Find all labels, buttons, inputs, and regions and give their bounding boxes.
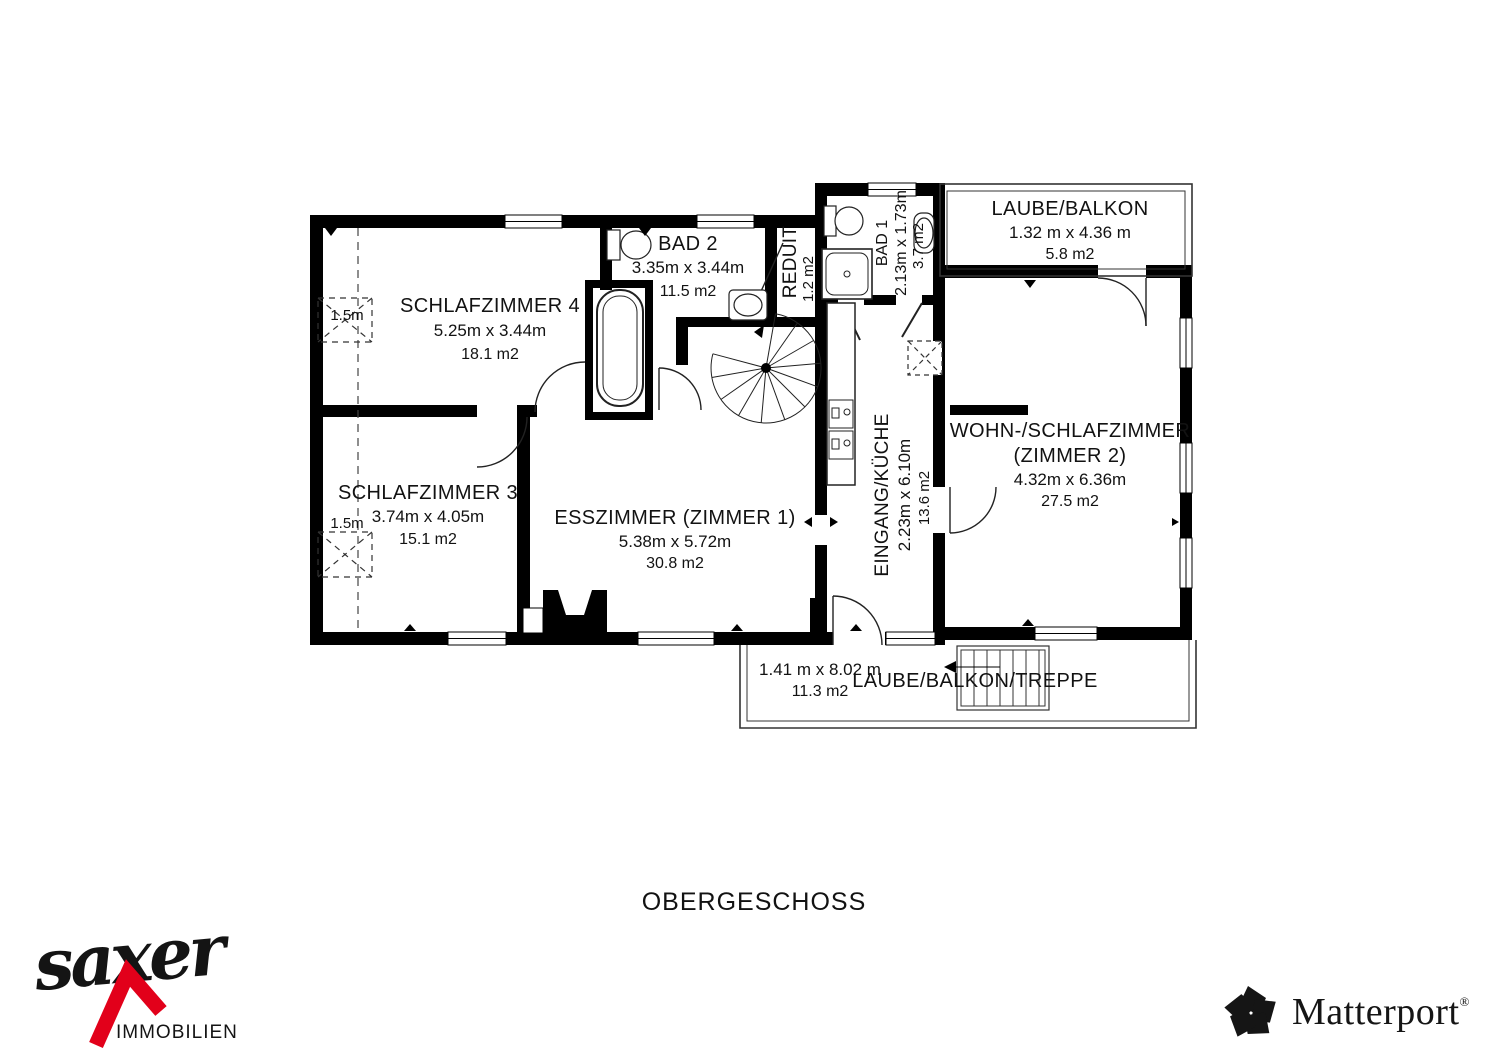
room-dims-wohn-schlafzimmer: 4.32m x 6.36m (1014, 470, 1126, 489)
room-label-schlafzimmer4: SCHLAFZIMMER 4 (400, 295, 580, 317)
window-icon (1035, 627, 1097, 640)
room-area-laube-balkon: 5.8 m2 (1046, 246, 1095, 263)
room-dims-schlafzimmer4: 5.25m x 3.44m (434, 321, 546, 340)
room-label2-wohn-schlafzimmer: (ZIMMER 2) (1014, 445, 1127, 467)
window-icon (638, 632, 714, 645)
skylight-icon (908, 341, 942, 375)
room-area-esszimmer: 30.8 m2 (646, 555, 704, 572)
window-icon (505, 215, 562, 228)
room-dims-esszimmer: 5.38m x 5.72m (619, 532, 731, 551)
room-label-esszimmer: ESSZIMMER (ZIMMER 1) (554, 507, 795, 529)
saxer-tagline: IMMOBILIEN (116, 1022, 238, 1044)
room-dims-schlafzimmer3: 3.74m x 4.05m (372, 507, 484, 526)
sink-icon (729, 290, 767, 320)
closet-width-label: 1.5m (330, 307, 363, 324)
room-dims-laube-balkon: 1.32 m x 4.36 m (1009, 223, 1131, 242)
matterport-logo: Matterport® (1222, 983, 1469, 1041)
window-icon (1180, 443, 1192, 493)
window-icon (1180, 318, 1192, 368)
room-area-laube-treppe: 11.3 m2 (792, 683, 849, 700)
door-leaf (902, 303, 922, 337)
bathtub-icon (597, 290, 643, 406)
door-arc (950, 487, 996, 533)
room-area-eingang-kueche: 13.6 m2 (916, 471, 933, 525)
closet-icon (318, 532, 372, 577)
door-arc (1098, 278, 1146, 326)
door-arc (535, 362, 585, 412)
room-label-reduit: REDUIT (780, 226, 801, 299)
registered-trademark: ® (1460, 994, 1470, 1009)
floorplan-page: SCHLAFZIMMER 4 5.25m x 3.44m 18.1 m2 BAD… (0, 0, 1500, 1060)
room-label-laube-balkon: LAUBE/BALKON (991, 198, 1148, 220)
matterport-pinwheel-icon (1222, 983, 1280, 1041)
closet-width-label: 1.5m (330, 515, 363, 532)
matterport-wordmark: Matterport (1292, 991, 1460, 1033)
room-area-bad1: 3.7 m2 (910, 223, 927, 269)
window-icon (1180, 538, 1192, 588)
toilet-icon (824, 206, 863, 236)
obergeschoss-title: OBERGESCHOSS (642, 888, 867, 916)
room-label-bad1: BAD 1 (874, 220, 891, 266)
spiral-staircase-icon (711, 314, 821, 423)
room-dims-bad1: 2.13m x 1.73m (893, 190, 910, 296)
room-label-bad2: BAD 2 (658, 233, 718, 255)
shower-icon (822, 249, 872, 299)
room-area-schlafzimmer4: 18.1 m2 (461, 346, 519, 363)
room-label-eingang-kueche: EINGANG/KÜCHE (872, 413, 893, 576)
room-label-laube-treppe: LAUBE/BALKON/TREPPE (852, 670, 1097, 692)
room-dims-bad2: 3.35m x 3.44m (632, 258, 744, 277)
window-icon (697, 215, 754, 228)
room-label-wohn-schlafzimmer: WOHN-/SCHLAFZIMMER (950, 420, 1191, 442)
floor-plan-svg: SCHLAFZIMMER 4 5.25m x 3.44m 18.1 m2 BAD… (0, 0, 1500, 1060)
room-area-wohn-schlafzimmer: 27.5 m2 (1041, 493, 1099, 510)
window-icon (886, 632, 935, 645)
door-arc (659, 368, 701, 410)
room-label-schlafzimmer3: SCHLAFZIMMER 3 (338, 482, 518, 504)
window-icon (448, 632, 506, 645)
saxer-logo: saxer IMMOBILIEN (28, 923, 278, 1058)
door-opening (833, 632, 885, 645)
room-dims-eingang-kueche: 2.23m x 6.10m (895, 439, 914, 551)
room-area-reduit: 1.2 m2 (800, 256, 817, 302)
room-area-bad2: 11.5 m2 (660, 283, 717, 300)
room-area-schlafzimmer3: 15.1 m2 (399, 531, 457, 548)
